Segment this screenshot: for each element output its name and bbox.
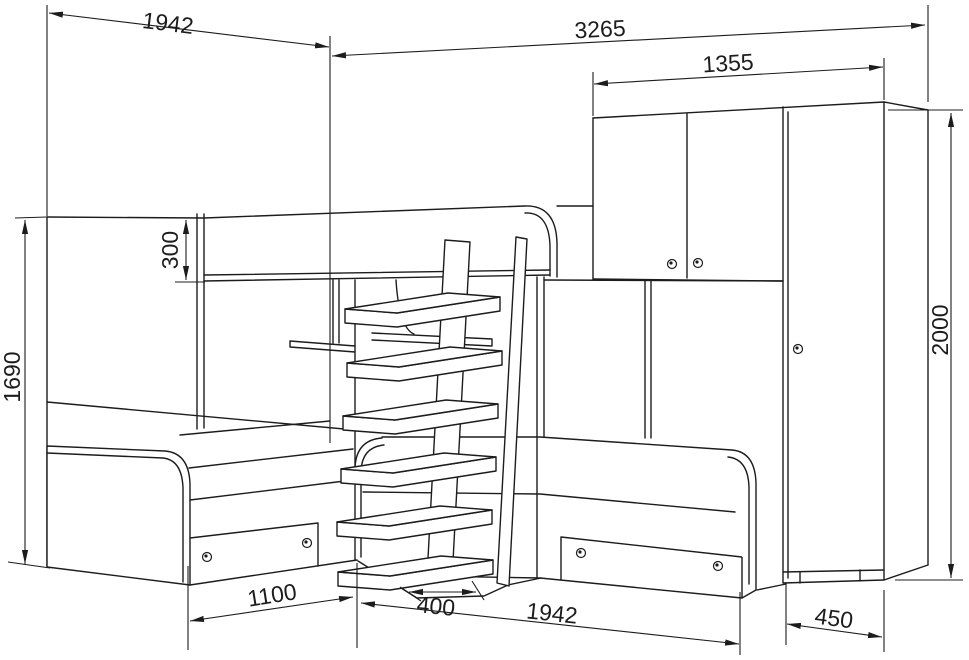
- dim-label-3265: 3265: [574, 15, 626, 44]
- right-drawer-handle-icon: [714, 562, 723, 571]
- dim-wardrobe-depth: 450: [786, 584, 884, 652]
- dim-label-300: 300: [157, 231, 183, 269]
- dim-guard-rail-height: 300: [15, 217, 205, 282]
- dim-wardrobe-height: 2000: [888, 110, 963, 580]
- bunk-bed-drawing: 1942 3265 1355 300 1690 2000 1100 400: [0, 0, 969, 660]
- ladder: [337, 237, 527, 590]
- dim-label-2000: 2000: [927, 304, 953, 355]
- wardrobe-handle-icon: [794, 345, 803, 354]
- cabinet-handle-icon: [694, 259, 703, 268]
- dim-label-1355: 1355: [702, 48, 755, 77]
- dim-overall-width: 3265: [332, 5, 928, 102]
- wardrobe: [593, 102, 928, 590]
- dim-label-1942-top: 1942: [141, 7, 195, 39]
- dim-left-section-width: 1942: [47, 5, 330, 443]
- technical-drawing-canvas: 1942 3265 1355 300 1690 2000 1100 400: [0, 0, 969, 660]
- left-drawer-handle-icon: [203, 553, 212, 562]
- right-drawer-handle-icon: [577, 549, 586, 558]
- back-panel: [544, 280, 783, 438]
- dim-label-450: 450: [813, 603, 854, 634]
- cabinet-handle-icon: [668, 260, 677, 269]
- dim-label-1942-bottom: 1942: [525, 597, 579, 628]
- dim-left-panel-height: 1690: [0, 220, 50, 568]
- dim-cabinet-width: 1355: [593, 48, 884, 116]
- left-drawer-handle-icon: [303, 539, 312, 548]
- dim-label-1690: 1690: [0, 351, 25, 402]
- dim-label-400: 400: [416, 591, 457, 621]
- overhead-cabinet: [593, 114, 783, 281]
- dim-left-bed-front: 1100: [188, 563, 357, 650]
